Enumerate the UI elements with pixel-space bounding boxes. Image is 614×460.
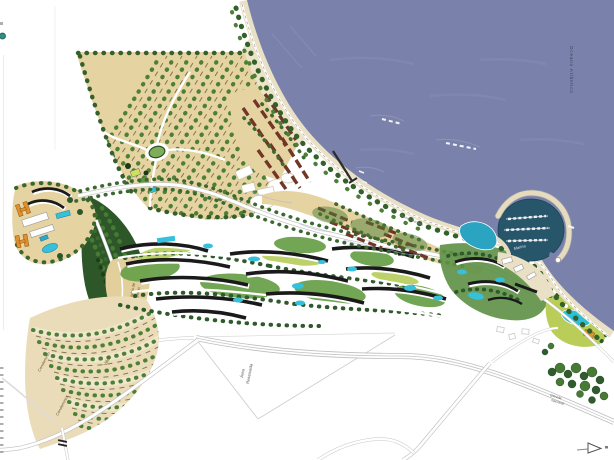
legend-dot — [0, 33, 6, 39]
masterplan-canvas: Núcleo de Ensino Villas — [0, 0, 614, 460]
ocean-label: Oceano Atlântico — [569, 46, 574, 94]
